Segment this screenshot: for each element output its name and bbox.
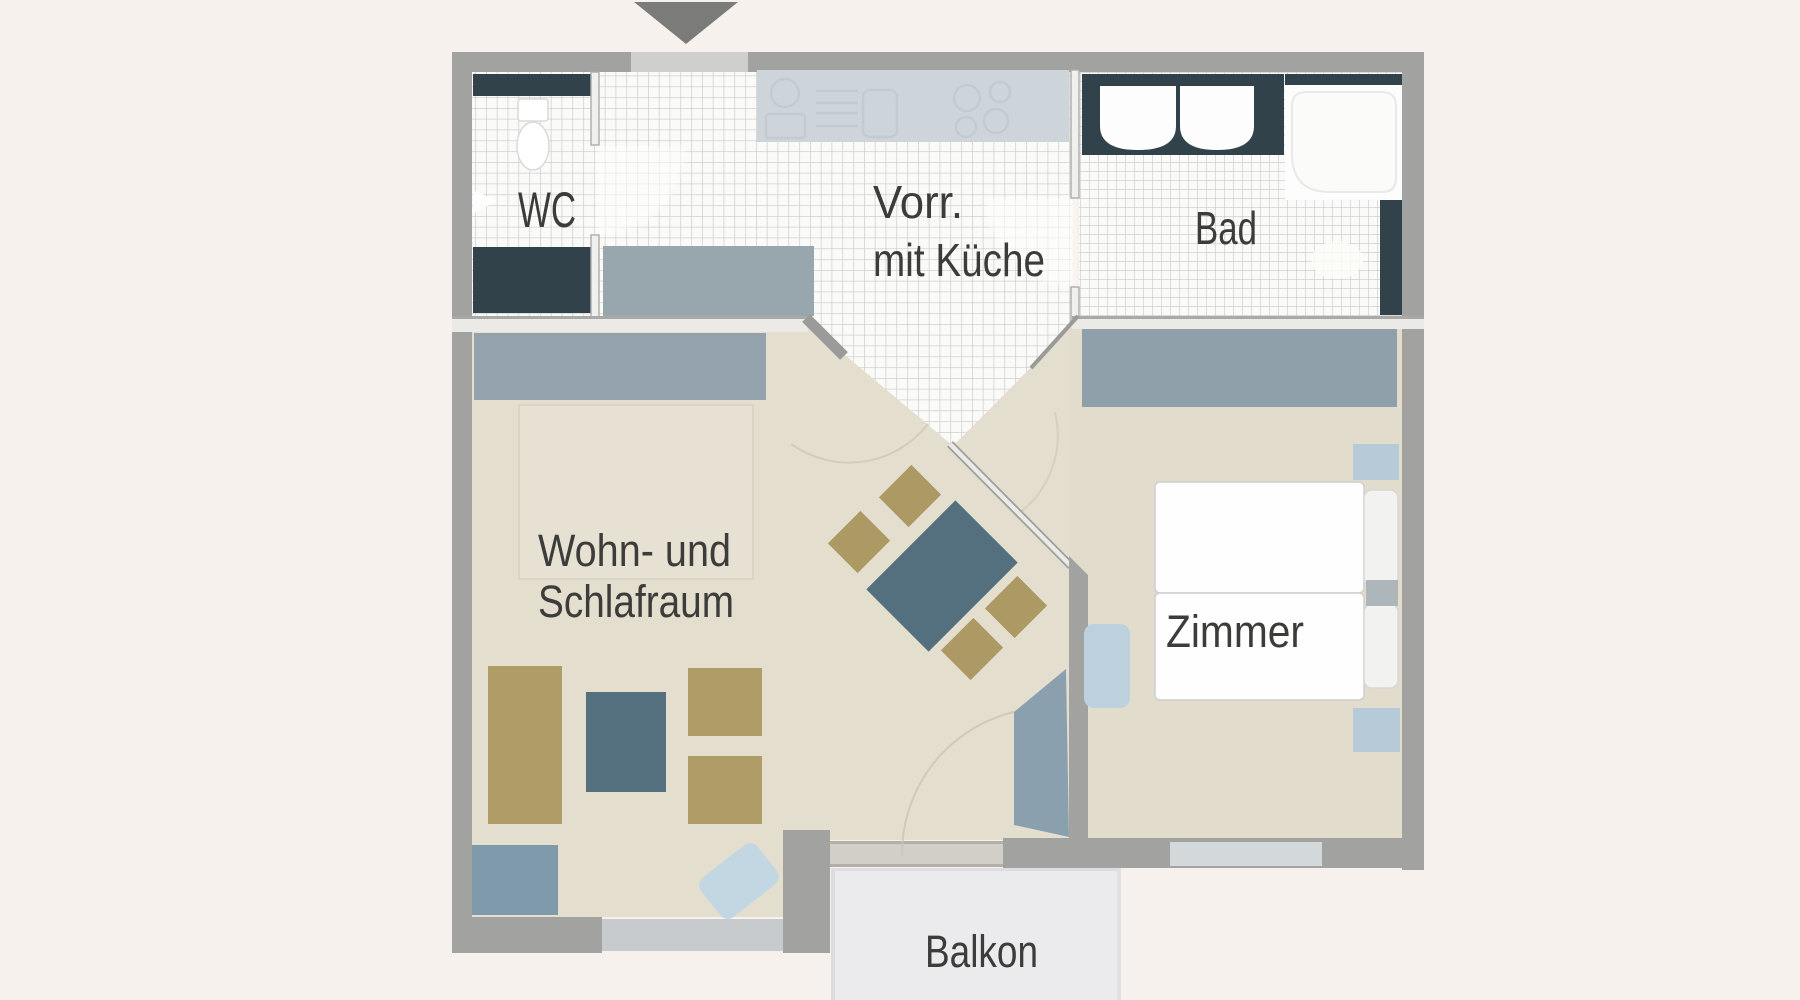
svg-text:Schlafraum: Schlafraum [538,576,734,627]
svg-text:mit Küche: mit Küche [873,234,1045,286]
svg-text:WC: WC [518,182,576,238]
svg-text:Zimmer: Zimmer [1166,606,1304,657]
svg-text:Vorr.: Vorr. [873,176,963,228]
svg-text:Bad: Bad [1195,202,1257,254]
svg-text:Balkon: Balkon [925,926,1038,977]
svg-text:Wohn- und: Wohn- und [538,525,731,576]
